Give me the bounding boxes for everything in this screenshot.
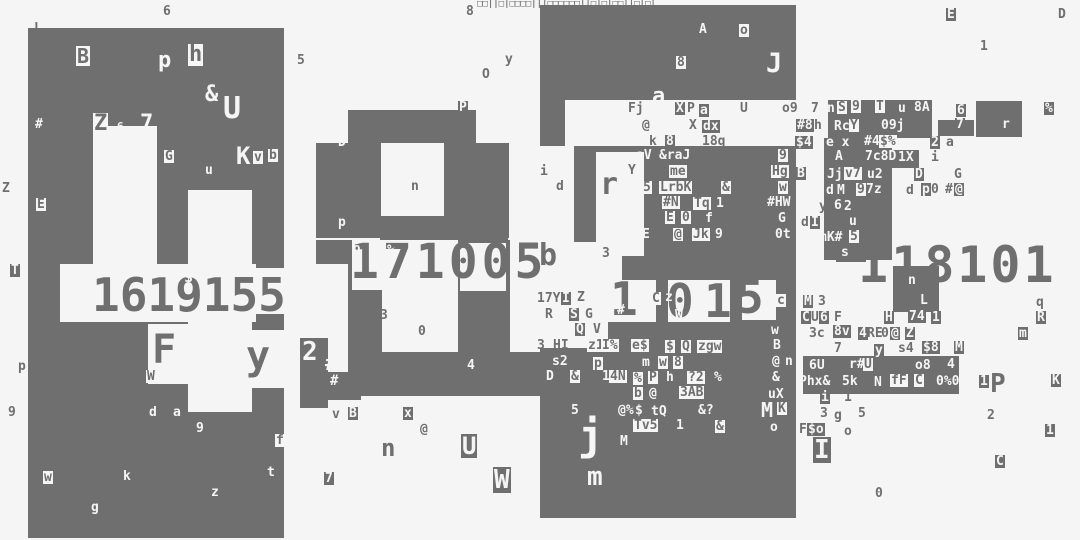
glyph: Hg	[771, 165, 789, 178]
glyph: s4	[898, 342, 914, 355]
glyph: o	[844, 425, 852, 438]
glyph: 5	[858, 407, 866, 420]
glyph: 1	[1045, 424, 1055, 437]
glyph: P	[458, 101, 468, 114]
glyph: %	[387, 244, 395, 257]
glyph: zgw	[697, 340, 722, 353]
glyph: d	[801, 216, 809, 229]
glyph: b	[268, 149, 278, 162]
glyph: B	[76, 46, 90, 66]
glyph: A	[699, 23, 707, 36]
glyph: y	[246, 336, 270, 376]
glyph: 3	[537, 339, 545, 352]
glyph: %	[1044, 102, 1054, 115]
glyph: I	[810, 216, 820, 229]
glyph: s	[841, 246, 849, 259]
glyph: 1	[844, 391, 852, 404]
big-digit-row: 1	[704, 278, 732, 324]
glyph: j	[578, 415, 603, 457]
glyph: A	[835, 150, 843, 163]
glyph: 9	[353, 245, 361, 258]
glyph: X	[675, 102, 685, 115]
glyph: L	[34, 22, 42, 35]
glyph: &	[715, 420, 725, 433]
glyph: 1	[980, 40, 988, 53]
glyph: a	[652, 86, 665, 108]
glyph: U	[740, 102, 748, 115]
glyph: Jk	[692, 228, 710, 241]
glyph: #HW	[767, 196, 790, 209]
glyph: t	[267, 466, 275, 479]
glyph: D	[1058, 8, 1066, 21]
glyph: 2	[301, 339, 319, 365]
glyph: h	[188, 44, 203, 66]
glyph: y	[819, 200, 827, 213]
noise-hole	[188, 190, 252, 266]
glyph: #4	[864, 135, 880, 148]
glyph: 8	[676, 56, 686, 69]
glyph: e$	[631, 339, 649, 352]
glyph: 8	[673, 356, 683, 369]
glyph: $8	[922, 341, 940, 354]
glyph: a	[173, 406, 181, 419]
glyph: w	[43, 471, 53, 484]
glyph: 3c	[809, 327, 825, 340]
glyph: 7	[140, 113, 153, 135]
glyph: 5k	[842, 375, 858, 388]
glyph: y	[505, 53, 513, 66]
glyph: 7	[811, 102, 819, 115]
glyph: Z	[905, 327, 915, 340]
glyph: 0t	[775, 228, 791, 241]
glyph: &?	[697, 404, 715, 417]
glyph: d	[826, 184, 834, 197]
glyph: Fj	[627, 102, 645, 115]
glyph: f	[705, 212, 713, 225]
glyph: E	[946, 8, 956, 21]
noise-block	[316, 143, 381, 238]
glyph: @	[771, 355, 781, 368]
glyph: q	[1036, 296, 1044, 309]
glyph: □□||□|□□□□|||□□□□□□||□|□|□□||□|□|	[477, 0, 656, 9]
glyph: me	[669, 165, 687, 178]
glyph: &	[721, 181, 731, 194]
glyph: v	[332, 408, 340, 421]
glyph: @	[954, 183, 964, 196]
glyph: 3	[818, 295, 826, 308]
glyph: C	[801, 311, 811, 324]
glyph: 0	[681, 211, 691, 224]
noise-hole	[188, 322, 252, 412]
glyph: 0	[931, 183, 939, 196]
glyph: d	[906, 184, 914, 197]
noise-block	[976, 101, 1022, 137]
glyph: R	[1036, 311, 1046, 324]
glyph: 9	[778, 149, 788, 162]
glyph: @	[890, 327, 900, 340]
glyph: S	[569, 308, 579, 321]
glyph: D	[338, 136, 346, 149]
glyph: 3AB	[679, 386, 704, 399]
glyph: 9	[856, 183, 866, 196]
glyph: n	[381, 436, 395, 460]
glyph: 7	[955, 118, 965, 131]
glyph: w	[771, 324, 779, 337]
glyph: @%	[617, 404, 635, 417]
glyph: i	[931, 151, 939, 164]
glyph: 9	[715, 228, 723, 241]
glyph: u	[205, 164, 213, 177]
glyph: 6	[117, 121, 124, 132]
glyph: o9	[782, 102, 798, 115]
glyph: r	[600, 170, 618, 200]
glyph: Z	[577, 291, 585, 304]
glyph: mK#	[819, 231, 842, 244]
glyph: 7z	[866, 183, 882, 196]
glyph: h	[814, 119, 822, 132]
glyph: 6	[956, 104, 966, 117]
glyph: v	[253, 151, 263, 164]
glyph: C	[995, 455, 1005, 468]
glyph: L	[920, 294, 928, 307]
glyph: 9	[196, 422, 204, 435]
glyph: 4N	[609, 370, 627, 383]
noise-block	[348, 110, 476, 143]
glyph: 5	[297, 54, 305, 67]
glyph: $	[665, 340, 675, 353]
glyph: $	[635, 404, 643, 417]
glyph: F	[834, 311, 842, 324]
glyph: J	[766, 50, 782, 77]
noise-hole	[93, 126, 157, 266]
glyph: C	[651, 292, 661, 305]
glyph: 5	[849, 230, 859, 243]
glyph: F	[152, 330, 176, 370]
glyph: G	[954, 168, 962, 181]
glyph: V	[593, 323, 601, 336]
glyph: d	[149, 406, 157, 419]
glyph: HI	[553, 339, 569, 352]
glyph: B	[348, 407, 358, 420]
big-digit-row: 5	[736, 274, 764, 320]
glyph: 8	[665, 135, 675, 148]
glyph: n	[785, 355, 793, 368]
glyph: 74	[908, 310, 926, 323]
glyph: u	[898, 102, 906, 115]
glyph: 6	[634, 196, 642, 209]
glyph: W	[493, 467, 511, 493]
glyph: K	[236, 144, 250, 168]
glyph: P	[990, 371, 1006, 397]
glyph: 0	[875, 487, 883, 500]
glyph: w	[778, 181, 788, 194]
glyph: Z	[2, 182, 10, 195]
glyph: &	[771, 371, 781, 384]
glyph: fF	[890, 374, 908, 387]
glyph: K	[777, 402, 787, 415]
glyph: 0%0	[936, 375, 959, 388]
glyph: 0	[881, 327, 889, 340]
glyph: 4	[947, 358, 955, 371]
glyph: W	[675, 309, 683, 322]
glyph: p	[18, 360, 26, 373]
glyph: n	[411, 180, 419, 193]
glyph: v7	[844, 167, 862, 180]
glyph: 8	[466, 5, 474, 18]
glyph: z	[211, 486, 219, 499]
glyph: 2	[930, 136, 940, 149]
glyph: M	[803, 295, 813, 308]
glyph: 5	[642, 181, 652, 194]
glyph: 3	[820, 407, 828, 420]
glyph: B	[796, 167, 806, 180]
glyph: P	[648, 371, 658, 384]
glyph: #	[330, 374, 338, 388]
glyph: U	[811, 311, 819, 324]
glyph: Jj	[827, 168, 843, 181]
glyph: Q	[681, 340, 691, 353]
glyph: P	[687, 102, 695, 115]
glyph: n	[908, 274, 916, 287]
glyph: m	[1018, 327, 1028, 340]
glyph: Q	[575, 323, 585, 336]
glyph: E	[36, 198, 46, 211]
glyph: &	[205, 84, 218, 106]
glyph: k	[123, 470, 131, 483]
glyph: M	[954, 341, 964, 354]
glyph: $%	[879, 135, 897, 148]
glyph: f	[275, 434, 285, 447]
glyph: k	[649, 135, 657, 148]
glyph: U	[863, 358, 873, 371]
glyph: d	[555, 180, 565, 193]
glyph: N	[874, 376, 882, 389]
glyph: y	[874, 344, 884, 357]
glyph: &	[570, 370, 580, 383]
glyph: 4	[467, 359, 475, 372]
glyph: 8v	[833, 325, 851, 338]
big-digit-row: 118101	[858, 240, 1057, 290]
glyph: b	[539, 241, 557, 271]
glyph: o	[739, 24, 749, 37]
glyph: i	[540, 165, 548, 178]
glyph: u	[849, 215, 857, 228]
glyph: 9	[851, 100, 861, 113]
glyph: T	[875, 100, 885, 113]
glyph: x	[403, 407, 413, 420]
glyph: R	[545, 308, 553, 321]
glyph: LrbK	[659, 181, 692, 194]
glyph: W	[146, 370, 156, 383]
glyph: 1X	[897, 151, 915, 164]
glyph: 09j	[881, 119, 904, 132]
glyph: ?2	[687, 371, 705, 384]
glyph: p	[921, 183, 931, 196]
big-digit-row: $	[184, 270, 193, 285]
glyph: D	[914, 168, 924, 181]
glyph: Z	[93, 113, 108, 135]
glyph: 3	[601, 247, 611, 260]
glyph: 6	[819, 311, 829, 324]
glyph: g	[91, 501, 99, 514]
glyph: dx	[702, 120, 720, 133]
glyph: Tq	[693, 197, 711, 210]
glyph: I%	[601, 339, 619, 352]
glyph: 2	[987, 409, 995, 422]
glyph: @	[673, 228, 683, 241]
glyph: T	[10, 264, 20, 277]
glyph: U	[223, 94, 241, 124]
glyph: 1	[931, 311, 941, 324]
glyph: H	[884, 311, 894, 324]
glyph: m	[641, 356, 651, 369]
glyph: 6U	[809, 359, 825, 372]
glyph: g	[834, 409, 842, 422]
glyph: 18q	[702, 135, 725, 148]
glyph: E	[665, 211, 675, 224]
glyph: w	[658, 356, 668, 369]
glyph: 6	[833, 199, 843, 212]
glyph: 0	[418, 325, 426, 338]
glyph: M	[619, 435, 629, 448]
glyph: 17Y	[537, 292, 560, 305]
noise-block	[348, 352, 560, 396]
glyph: Rc	[834, 120, 850, 133]
glyph: a	[699, 104, 709, 117]
glyph: Y	[627, 164, 637, 177]
glyph: G	[585, 308, 593, 321]
glyph: o	[770, 421, 778, 434]
glyph: 9	[8, 406, 16, 419]
glyph: 1	[979, 375, 989, 388]
glyph: @	[648, 387, 658, 400]
glyph: @	[642, 119, 650, 132]
glyph: #	[945, 183, 953, 196]
glyph: S	[837, 101, 847, 114]
glyph: s2	[551, 355, 569, 368]
glyph: 7	[324, 472, 334, 485]
glyph: 1	[675, 419, 685, 432]
glyph: O	[482, 68, 490, 81]
glyph: p	[158, 50, 171, 72]
glyph: Y	[849, 119, 859, 132]
glyph: G	[164, 150, 174, 163]
glyph: n	[827, 102, 835, 115]
glyph: F	[799, 423, 807, 436]
glyph: G	[778, 212, 786, 225]
glyph: M	[836, 184, 846, 197]
glyph: o8	[915, 359, 931, 372]
glyph: i	[820, 391, 830, 404]
glyph: @	[420, 423, 428, 436]
glitch-noise-canvas: 1619155$1710051015:1181016L8□□||□|□□□□||…	[0, 0, 1080, 540]
glyph: 8A	[914, 101, 930, 114]
glyph: b	[633, 387, 643, 400]
glyph: #	[325, 353, 337, 373]
glyph: #	[35, 118, 43, 131]
glyph: &raJ	[659, 149, 690, 162]
glyph: 1	[716, 197, 724, 210]
glyph: U	[461, 434, 477, 458]
big-digit-row: 171005	[350, 238, 547, 286]
glyph: E	[642, 228, 650, 241]
glyph: 6	[163, 5, 171, 18]
glyph: u2	[867, 168, 883, 181]
glyph: c	[776, 294, 786, 307]
glyph: I	[813, 437, 831, 463]
glyph: 7	[834, 342, 842, 355]
glyph: Ts	[535, 355, 551, 368]
glyph: m	[587, 464, 603, 490]
glyph: r	[1002, 118, 1010, 131]
glyph: D	[545, 370, 555, 383]
glyph: 2	[844, 200, 852, 213]
glyph: C	[914, 374, 924, 387]
glyph: a	[946, 136, 954, 149]
glyph: #8	[796, 119, 814, 132]
glyph: 3	[380, 309, 388, 322]
glyph: B	[773, 339, 781, 352]
glyph: $4	[795, 136, 813, 149]
glyph: z	[665, 291, 673, 304]
glyph: Tv5	[633, 419, 658, 432]
glyph: #N	[662, 196, 680, 209]
glyph: %	[633, 372, 643, 385]
glyph: h	[665, 371, 675, 384]
glyph: X	[689, 119, 697, 132]
glyph: %	[713, 371, 723, 384]
glyph: I	[561, 292, 571, 305]
glyph: #	[617, 304, 625, 317]
glyph: e x	[826, 136, 849, 149]
glyph: aV	[636, 149, 652, 162]
glyph: tQ	[650, 405, 668, 418]
glyph: K	[1051, 374, 1061, 387]
glyph: p	[338, 216, 346, 229]
glyph: Phx&	[799, 375, 830, 388]
glyph: M	[760, 400, 774, 420]
glyph: 7c8D	[865, 150, 896, 163]
